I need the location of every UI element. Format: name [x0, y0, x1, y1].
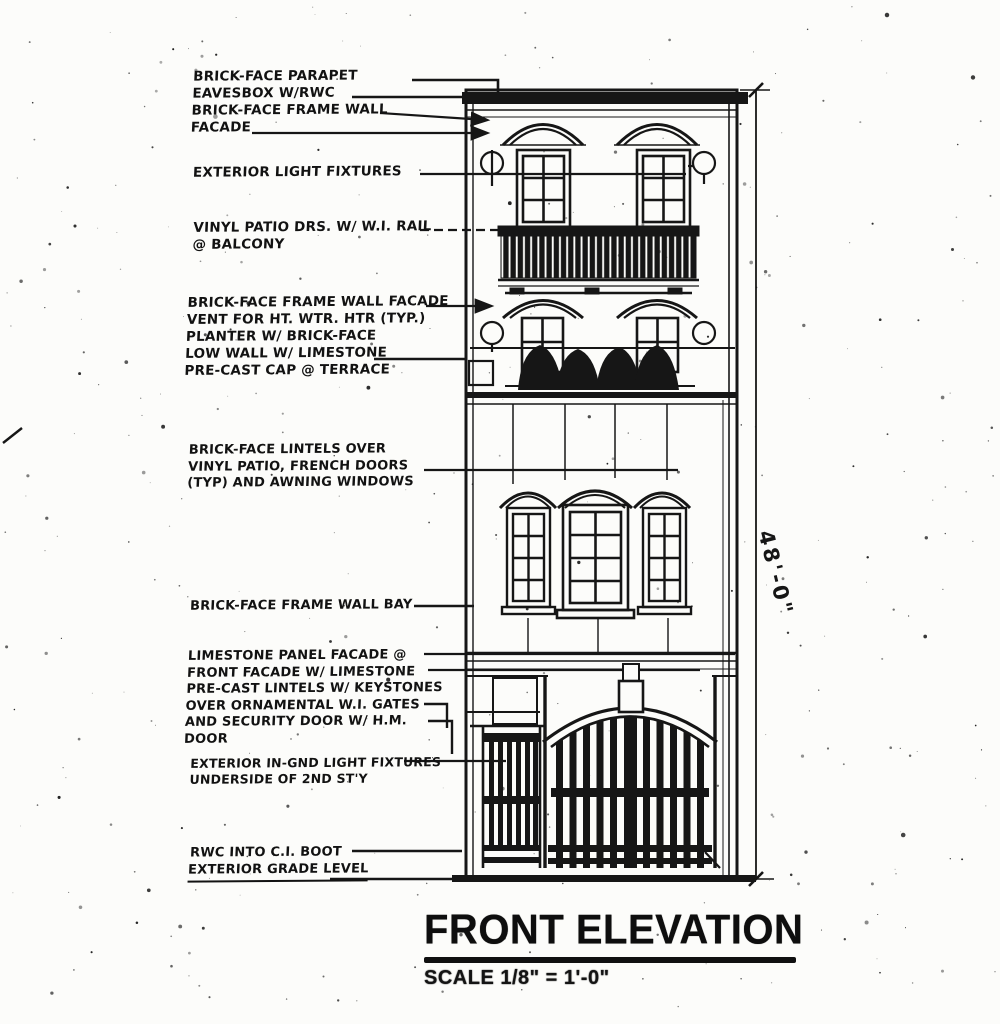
- parapet: [462, 92, 748, 117]
- second-floor-bay: [500, 491, 691, 653]
- ground-floor-gates: [466, 664, 720, 868]
- annotation-line: BRICK-FACE FRAME WALL FACADE: [187, 293, 449, 312]
- annotation-line: LOW WALL W/ LIMESTONE: [185, 344, 447, 363]
- elevation-drawing: 48'-0": [0, 0, 1000, 1024]
- annotation-line: PRE-CAST CAP @ TERRACE: [184, 361, 446, 380]
- annotation-line: RWC INTO C.I. BOOT: [190, 844, 343, 862]
- annotation-grade-level: EXTERIOR GRADE LEVEL: [188, 861, 369, 882]
- annotation-balcony: VINYL PATIO DRS. W/ W.I. RAIL @ BALCONY: [192, 218, 432, 254]
- balcony-rail: [498, 226, 699, 294]
- third-floor: [466, 301, 737, 405]
- annotation-line: AND SECURITY DOOR W/ H.M.: [184, 713, 441, 731]
- planter-shrubs: [518, 345, 679, 390]
- annotation-limestone-group: LIMESTONE PANEL FACADE @ FRONT FACADE W/…: [184, 647, 445, 748]
- security-door: [466, 712, 545, 868]
- annotation-bay: BRICK-FACE FRAME WALL BAY: [190, 597, 413, 615]
- annotation-line: OVER ORNAMENTAL W.I. GATES: [185, 697, 442, 715]
- grade-line: [452, 875, 756, 882]
- annotation-lintels-group: BRICK-FACE LINTELS OVER VINYL PATIO, FRE…: [187, 441, 416, 492]
- drawing-scale: SCALE 1/8" = 1'-0": [424, 967, 803, 990]
- annotation-line: PRE-CAST LINTELS W/ KEYSTONES: [186, 680, 443, 698]
- annotation-line: FRONT FACADE W/ LIMESTONE: [187, 664, 444, 682]
- limestone-band: [466, 653, 737, 724]
- height-dimension: 48'-0": [737, 83, 798, 886]
- annotation-line: EXTERIOR IN-GND LIGHT FIXTURES: [190, 754, 442, 771]
- height-dimension-label: 48'-0": [753, 528, 798, 619]
- fourth-floor: [481, 125, 715, 295]
- annotation-line: BRICK-FACE FRAME WALL: [191, 101, 388, 119]
- annotation-parapet-group: BRICK-FACE PARAPET EAVESBOX W/RWC BRICK-…: [190, 67, 389, 136]
- drawing-title: FRONT ELEVATION: [424, 907, 803, 954]
- annotation-line: VINYL PATIO, FRENCH DOORS: [188, 458, 415, 476]
- annotation-line: BRICK-FACE LINTELS OVER: [188, 441, 415, 459]
- annotation-line: PLANTER W/ BRICK-FACE: [186, 327, 448, 346]
- annotation-line: VINYL PATIO DRS. W/ W.I. RAIL: [193, 218, 432, 237]
- annotation-line: (TYP) AND AWNING WINDOWS: [187, 474, 414, 492]
- annotation-line: BRICK-FACE FRAME WALL BAY: [190, 597, 413, 615]
- wrought-iron-gate-bars: [556, 690, 704, 868]
- annotation-line: EXTERIOR LIGHT FIXTURES: [193, 163, 403, 181]
- annotation-line: UNDERSIDE OF 2ND ST'Y: [189, 770, 441, 787]
- annotation-line: BRICK-FACE PARAPET: [193, 67, 390, 85]
- annotation-line: EAVESBOX W/RWC: [192, 84, 389, 102]
- annotation-line: VENT FOR HT. WTR. HTR (TYP.): [186, 310, 448, 329]
- scanned-elevation-sheet: 48'-0" BRICK-FACE PARAPET EAVESBOX W/RWC…: [0, 0, 1000, 1024]
- title-block: FRONT ELEVATION SCALE 1/8" = 1'-0": [424, 908, 803, 990]
- annotation-exterior-lights: EXTERIOR LIGHT FIXTURES: [193, 163, 403, 181]
- annotation-line: @ BALCONY: [192, 235, 431, 254]
- annotation-terrace-group: BRICK-FACE FRAME WALL FACADE VENT FOR HT…: [184, 293, 449, 380]
- annotation-line: DOOR: [184, 730, 441, 748]
- annotation-line: FACADE: [190, 118, 387, 136]
- annotation-line: EXTERIOR GRADE LEVEL: [188, 861, 369, 882]
- annotation-rwc-boot: RWC INTO C.I. BOOT: [190, 844, 343, 862]
- annotation-line: LIMESTONE PANEL FACADE @: [187, 647, 444, 665]
- annotation-in-gnd-lights: EXTERIOR IN-GND LIGHT FIXTURES UNDERSIDE…: [189, 754, 441, 787]
- title-underline: [424, 957, 796, 963]
